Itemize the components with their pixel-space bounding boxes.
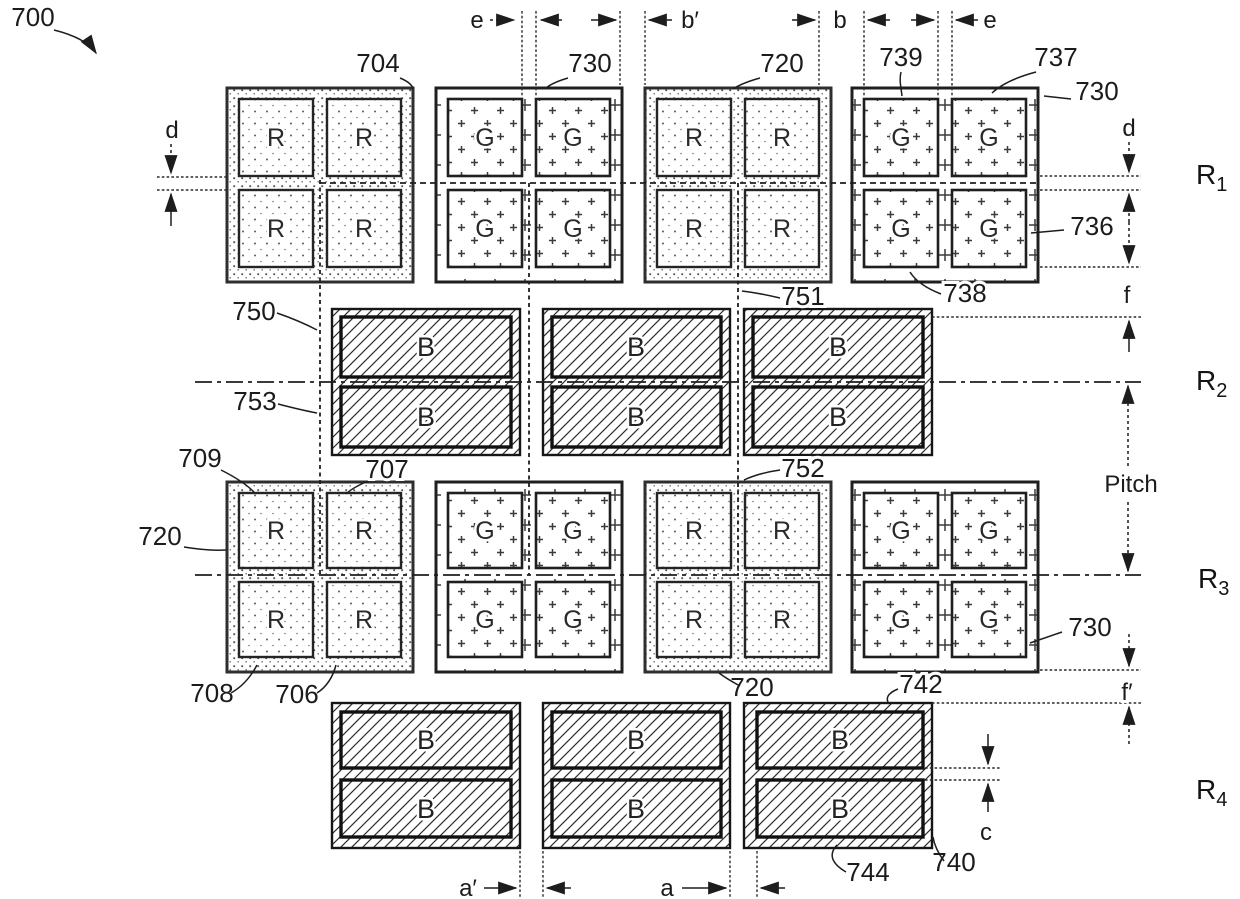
subpixel-label: G xyxy=(475,124,494,152)
subpixel-label: G xyxy=(979,215,998,243)
subpixel-label: R xyxy=(267,124,285,152)
subpixel-label: R xyxy=(773,606,791,634)
pixel-group-row3-green-1: G G G G xyxy=(436,482,622,672)
subpixel-label: B xyxy=(627,402,645,432)
ref-label-737: 737 xyxy=(1034,42,1077,72)
subpixel-label: R xyxy=(685,124,703,152)
subpixel-label: G xyxy=(979,124,998,152)
subpixel-label: G xyxy=(979,517,998,545)
ref-label-739: 739 xyxy=(879,42,922,72)
subpixel-label: B xyxy=(829,402,847,432)
subpixel-label: R xyxy=(685,215,703,243)
dim-label-c: c xyxy=(980,819,992,846)
ref-label-730: 730 xyxy=(1068,612,1111,642)
subpixel-label: G xyxy=(563,215,582,243)
dim-label-a-prime: a′ xyxy=(459,875,477,899)
subpixel-label: G xyxy=(475,215,494,243)
ref-label-700: 700 xyxy=(11,2,54,32)
patent-figure-pixel-array: R R R R G G G G R R R R G G G G xyxy=(0,0,1240,899)
subpixel-label: B xyxy=(627,332,645,362)
subpixel-label: R xyxy=(773,215,791,243)
ref-label-720: 720 xyxy=(138,521,181,551)
dim-label-e: e xyxy=(470,7,483,34)
subpixel-label: R xyxy=(685,517,703,545)
ref-label-744: 744 xyxy=(846,857,889,887)
subpixel-label: R xyxy=(773,124,791,152)
ref-label-738: 738 xyxy=(943,278,986,308)
dim-label-b-prime: b′ xyxy=(681,7,699,34)
subpixel-label: R xyxy=(267,606,285,634)
subpixel-label: B xyxy=(417,332,435,362)
subpixel-label: G xyxy=(475,517,494,545)
subpixel-label: G xyxy=(475,606,494,634)
pixel-group-row1-green-2: G G G G xyxy=(852,88,1038,282)
pixel-group-row4-blue-2: B B xyxy=(543,703,730,848)
subpixel-label: G xyxy=(563,124,582,152)
subpixel-label: B xyxy=(831,794,849,824)
ref-label-742: 742 xyxy=(899,669,942,699)
pixel-group-row4-blue-3: B B xyxy=(744,703,932,848)
subpixel-label: G xyxy=(979,606,998,634)
subpixel-label: R xyxy=(355,215,373,243)
subpixel-label: B xyxy=(829,332,847,362)
subpixel-label: B xyxy=(831,725,849,755)
subpixel-label: G xyxy=(563,517,582,545)
ref-label-720: 720 xyxy=(760,48,803,78)
dim-label-f: f xyxy=(1124,282,1131,309)
subpixel-label: R xyxy=(355,606,373,634)
dim-label-f-prime: f′ xyxy=(1121,679,1133,706)
pixel-group-row3-red-2: R R R R xyxy=(645,482,831,672)
ref-label-704: 704 xyxy=(356,48,399,78)
subpixel-label: R xyxy=(267,215,285,243)
subpixel-label: B xyxy=(627,725,645,755)
ref-label-730: 730 xyxy=(1075,76,1118,106)
subpixel-label: G xyxy=(563,606,582,634)
pixel-group-row4-blue-1: B B xyxy=(332,703,520,848)
ref-label-750: 750 xyxy=(232,296,275,326)
ref-label-708: 708 xyxy=(190,678,233,708)
subpixel-label: G xyxy=(891,124,910,152)
pixel-group-row1-red-1: R R R R xyxy=(227,88,413,282)
ref-label-706: 706 xyxy=(275,679,318,709)
dim-label-d: d xyxy=(1122,115,1135,142)
ref-label-736: 736 xyxy=(1070,211,1113,241)
ref-label-752: 752 xyxy=(781,453,824,483)
figure-canvas: R R R R G G G G R R R R G G G G xyxy=(0,0,1240,899)
subpixel-label: R xyxy=(355,124,373,152)
ref-label-753: 753 xyxy=(233,386,276,416)
ref-label-751: 751 xyxy=(781,281,824,311)
subpixel-label: B xyxy=(417,402,435,432)
dim-label-d: d xyxy=(165,117,178,144)
ref-label-720: 720 xyxy=(730,672,773,702)
ref-label-730: 730 xyxy=(568,48,611,78)
subpixel-label: R xyxy=(773,517,791,545)
subpixel-label: G xyxy=(891,517,910,545)
subpixel-label: G xyxy=(891,606,910,634)
ref-label-707: 707 xyxy=(365,454,408,484)
subpixel-label: G xyxy=(891,215,910,243)
dim-label-pitch: Pitch xyxy=(1104,471,1157,498)
subpixel-label: R xyxy=(355,517,373,545)
subpixel-label: B xyxy=(627,794,645,824)
subpixel-label: R xyxy=(685,606,703,634)
ref-label-709: 709 xyxy=(178,443,221,473)
dim-label-b: b xyxy=(833,7,846,34)
subpixel-label: B xyxy=(417,794,435,824)
subpixel-label: B xyxy=(417,725,435,755)
subpixel-label: R xyxy=(267,517,285,545)
dim-label-a: a xyxy=(660,875,674,899)
pixel-group-row3-green-2: G G G G xyxy=(852,482,1038,672)
dim-label-e: e xyxy=(983,7,996,34)
